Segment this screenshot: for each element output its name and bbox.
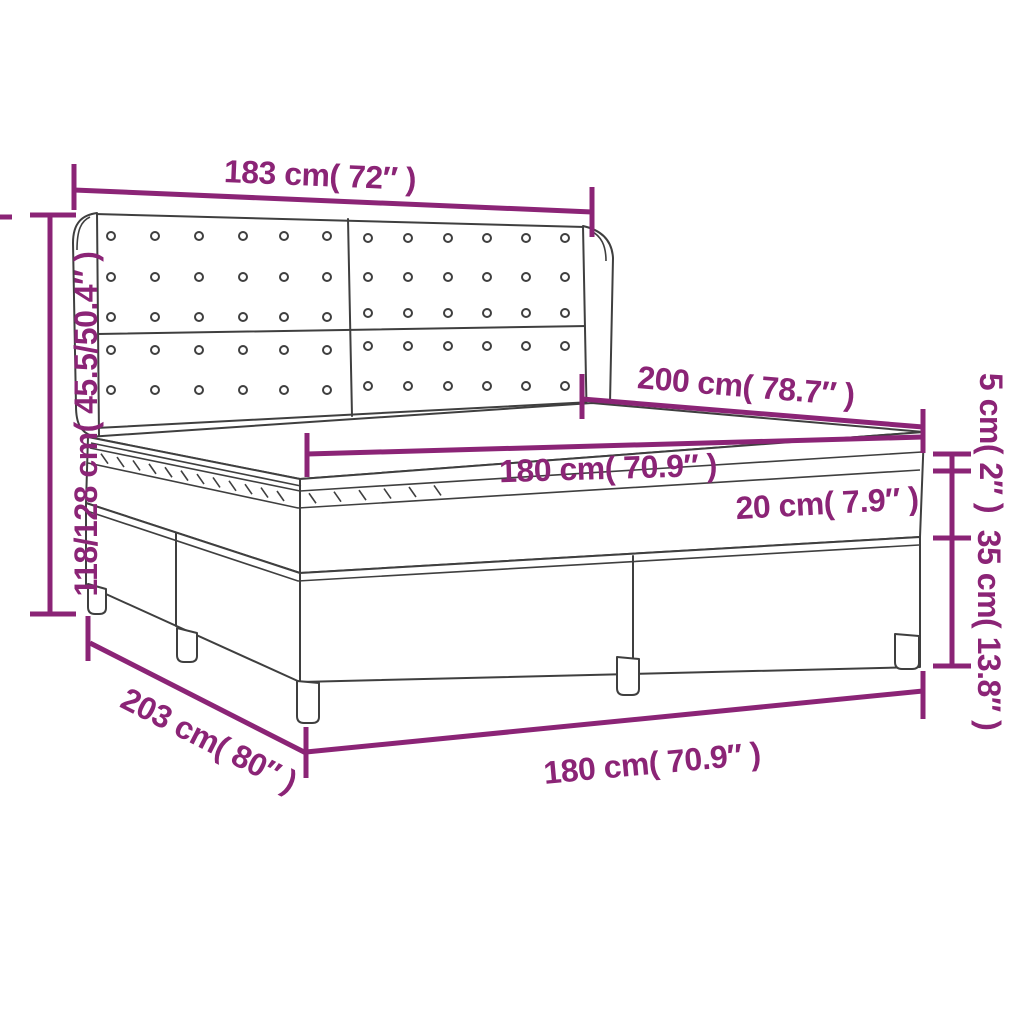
topper-height-label: 5 cm( 2″ )	[973, 373, 1009, 513]
headboard-button	[404, 342, 412, 350]
headboard-button	[323, 273, 331, 281]
headboard-button	[404, 273, 412, 281]
headboard-button	[280, 273, 288, 281]
headboard-button	[483, 342, 491, 350]
headboard-button	[239, 346, 247, 354]
headboard-button	[561, 342, 569, 350]
headboard-button	[239, 273, 247, 281]
headboard-button	[107, 386, 115, 394]
headboard-button	[364, 382, 372, 390]
headboard-button	[323, 313, 331, 321]
headboard-button	[522, 273, 530, 281]
bed-leg	[617, 657, 639, 695]
headboard-button	[107, 273, 115, 281]
headboard-button	[561, 382, 569, 390]
dimension-base-width: 180 cm( 70.9″ )	[306, 671, 923, 791]
headboard-button	[483, 234, 491, 242]
headboard-button	[107, 346, 115, 354]
headboard-button	[151, 313, 159, 321]
headboard-button	[151, 386, 159, 394]
product-dimension-diagram: 183 cm( 72″ ) 118/128 cm( 45.5/50.4″ ) 2…	[0, 0, 1024, 1024]
headboard-button	[444, 309, 452, 317]
headboard-button	[364, 234, 372, 242]
base-width-label: 180 cm( 70.9″ )	[542, 735, 762, 791]
headboard-button	[561, 309, 569, 317]
headboard-button	[483, 273, 491, 281]
headboard-button	[195, 386, 203, 394]
headboard-button	[404, 234, 412, 242]
overall-height-label: 118/128 cm( 45.5/50.4″ )	[68, 252, 104, 597]
headboard-button	[561, 234, 569, 242]
headboard-button	[522, 234, 530, 242]
headboard-button	[280, 313, 288, 321]
bed-leg	[895, 634, 919, 669]
base-height-label: 35 cm( 13.8″ )	[971, 530, 1007, 730]
headboard-button	[323, 346, 331, 354]
headboard-button	[151, 346, 159, 354]
headboard-button	[280, 232, 288, 240]
bed-leg	[297, 681, 319, 723]
headboard-button	[107, 313, 115, 321]
headboard-button	[522, 309, 530, 317]
headboard-button	[364, 342, 372, 350]
headboard-button	[280, 386, 288, 394]
base-length-label: 203 cm( 80″ )	[115, 680, 302, 799]
headboard-button	[404, 309, 412, 317]
headboard-button	[444, 382, 452, 390]
headboard-button	[522, 342, 530, 350]
headboard-button	[195, 346, 203, 354]
headboard-button	[239, 313, 247, 321]
headboard-button	[444, 273, 452, 281]
headboard-button	[364, 273, 372, 281]
headboard-button	[195, 273, 203, 281]
headboard-face	[95, 214, 592, 428]
headboard-width-label: 183 cm( 72″ )	[223, 153, 416, 197]
mattress-width-label: 180 cm( 70.9″ )	[499, 447, 718, 489]
headboard-button	[364, 309, 372, 317]
headboard-button	[483, 382, 491, 390]
headboard-button	[561, 273, 569, 281]
bed-diagram-svg: 183 cm( 72″ ) 118/128 cm( 45.5/50.4″ ) 2…	[0, 0, 1024, 1024]
headboard-button	[444, 234, 452, 242]
headboard-button	[323, 386, 331, 394]
headboard-button	[151, 232, 159, 240]
headboard-button	[404, 382, 412, 390]
dimension-overall-height: 118/128 cm( 45.5/50.4″ )	[0, 215, 104, 614]
headboard-button	[107, 232, 115, 240]
headboard-button	[323, 232, 331, 240]
headboard-button	[522, 382, 530, 390]
headboard-button	[239, 386, 247, 394]
dimension-line	[306, 691, 923, 752]
headboard-button	[195, 313, 203, 321]
bed-leg	[177, 628, 197, 662]
headboard-button	[239, 232, 247, 240]
headboard-button	[195, 232, 203, 240]
headboard-button	[444, 342, 452, 350]
headboard-button	[280, 346, 288, 354]
headboard-button	[151, 273, 159, 281]
headboard-button	[483, 309, 491, 317]
